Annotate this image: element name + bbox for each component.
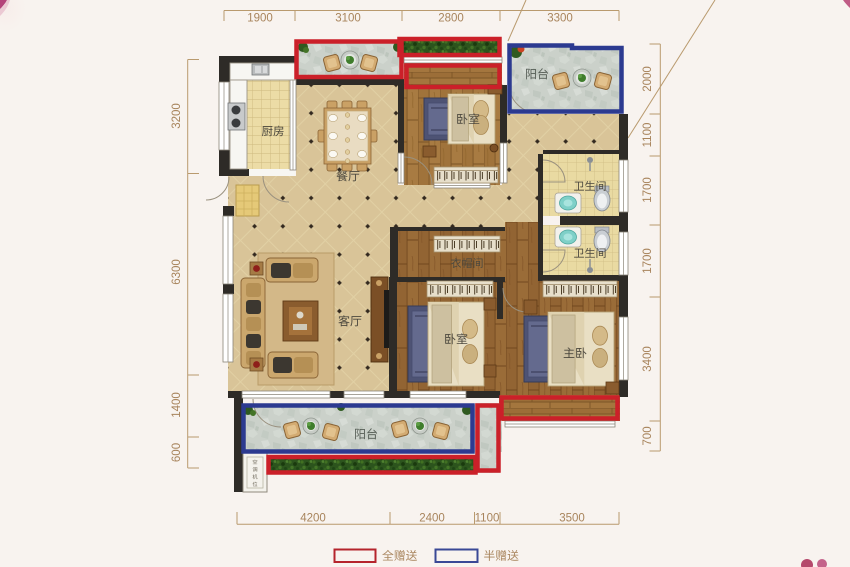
svg-text:2000: 2000 xyxy=(642,66,654,92)
svg-text:1700: 1700 xyxy=(642,248,654,274)
svg-text:6300: 6300 xyxy=(171,259,183,285)
svg-text:4200: 4200 xyxy=(300,513,326,525)
svg-text:600: 600 xyxy=(171,443,183,462)
svg-text:1100: 1100 xyxy=(475,513,500,525)
svg-text:3400: 3400 xyxy=(642,346,654,372)
svg-text:2400: 2400 xyxy=(419,513,445,525)
svg-text:1100: 1100 xyxy=(642,123,654,148)
svg-text:3300: 3300 xyxy=(547,13,573,25)
svg-text:1900: 1900 xyxy=(247,13,273,25)
svg-text:700: 700 xyxy=(642,426,654,445)
svg-text:3100: 3100 xyxy=(335,13,361,25)
svg-text:3200: 3200 xyxy=(171,103,183,129)
svg-text:1700: 1700 xyxy=(642,177,654,203)
svg-text:2800: 2800 xyxy=(438,13,464,25)
svg-text:3500: 3500 xyxy=(559,513,585,525)
svg-text:1400: 1400 xyxy=(171,392,183,418)
